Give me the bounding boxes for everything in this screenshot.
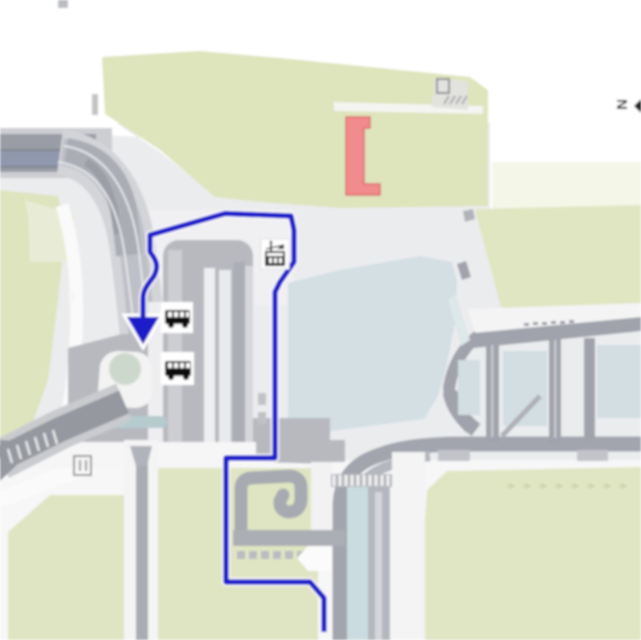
svg-text:N: N: [613, 99, 630, 110]
